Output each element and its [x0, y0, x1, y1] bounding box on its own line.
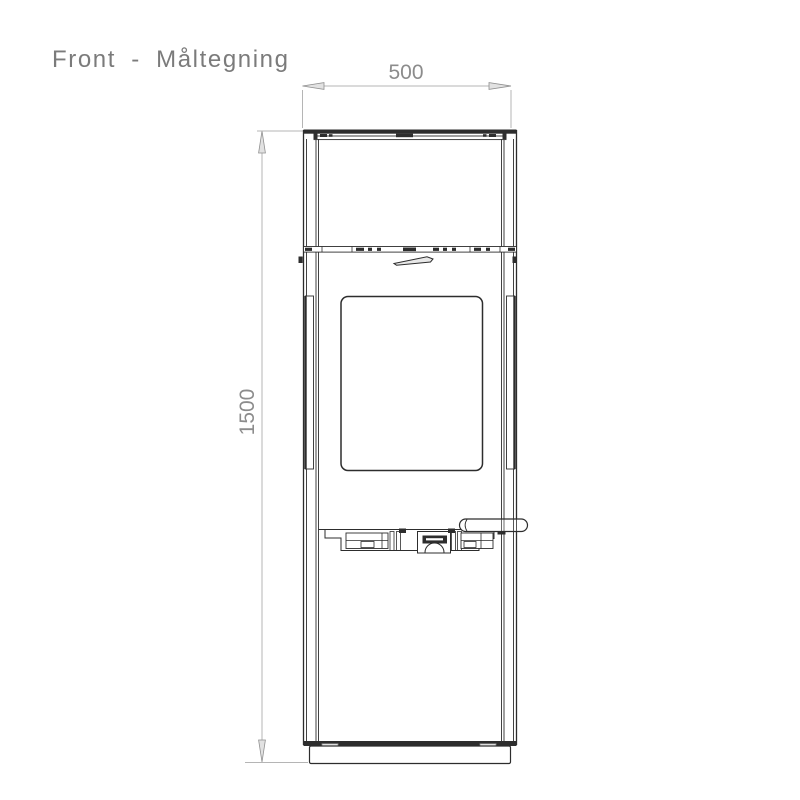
detail-mark	[486, 248, 490, 251]
top-plate	[304, 130, 517, 140]
detail-mark	[503, 134, 507, 140]
air-control-lever	[394, 257, 433, 265]
dimension-height: 1500	[236, 131, 308, 763]
dimension-width-label: 500	[388, 61, 423, 84]
detail-mark	[498, 532, 506, 535]
drawing-page: Front - Måltegning 500 1500	[0, 0, 800, 800]
detail-mark	[426, 538, 443, 540]
detail-mark	[443, 248, 447, 251]
dimension-width: 500	[303, 61, 512, 128]
detail-mark	[403, 248, 416, 252]
detail-mark	[314, 134, 318, 140]
detail-mark	[377, 248, 381, 251]
base-plinth	[310, 746, 511, 764]
detail-mark	[474, 248, 481, 251]
detail-mark	[508, 248, 515, 251]
stove-body	[299, 130, 528, 764]
hinge-mark-right	[513, 257, 517, 264]
detail-mark	[329, 134, 333, 137]
arrow-right-icon	[489, 83, 511, 90]
detail-mark	[356, 248, 364, 251]
arrow-up-icon	[259, 131, 266, 153]
detail-mark	[483, 134, 487, 137]
detail-mark	[489, 134, 496, 137]
detail-mark	[396, 134, 413, 138]
base	[304, 741, 517, 764]
detail-mark	[452, 532, 456, 551]
side-trim-right	[507, 296, 515, 469]
detail-mark	[452, 248, 456, 251]
detail-mark	[368, 248, 372, 251]
detail-mark	[397, 532, 401, 551]
detail-mark	[320, 134, 327, 137]
detail-mark	[390, 532, 394, 551]
detail-mark	[305, 248, 312, 251]
arrow-left-icon	[303, 83, 325, 90]
door-glass	[341, 297, 483, 471]
hinge-mark-left	[299, 257, 303, 264]
latch-assembly	[325, 529, 494, 554]
dimension-height-label: 1500	[236, 389, 259, 436]
top-plate-band	[304, 130, 517, 134]
side-trim-left	[305, 296, 313, 469]
arrow-down-icon	[259, 740, 266, 762]
stove-drawing: 500 1500	[0, 0, 800, 800]
detail-mark	[399, 529, 406, 534]
detail-mark	[433, 248, 439, 251]
handle-bar	[460, 519, 528, 532]
